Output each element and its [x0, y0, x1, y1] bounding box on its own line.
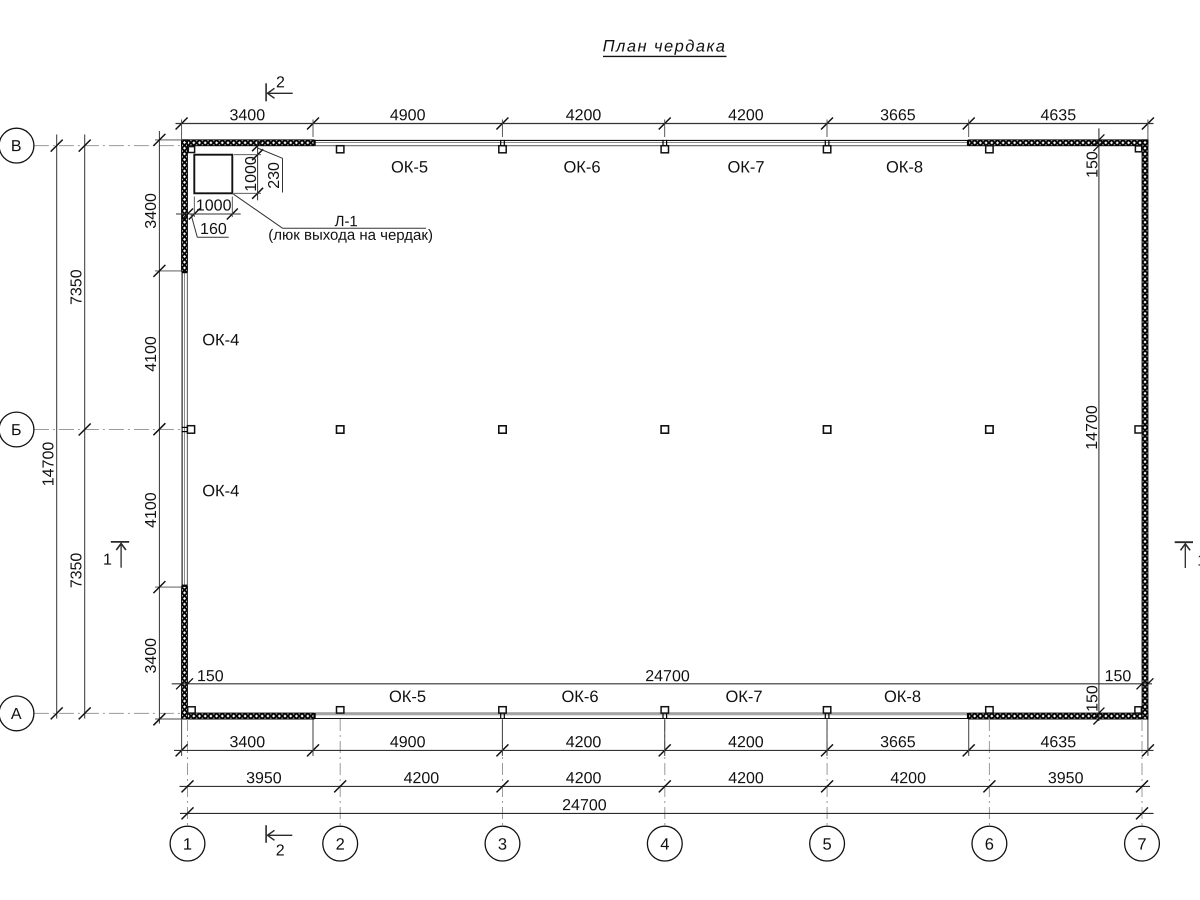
- svg-text:ОК-6: ОК-6: [561, 688, 598, 706]
- svg-text:150: 150: [1105, 668, 1132, 685]
- svg-text:План чердака: План чердака: [603, 37, 727, 55]
- svg-text:1: 1: [103, 552, 112, 569]
- svg-text:4900: 4900: [390, 734, 426, 751]
- svg-text:ОК-6: ОК-6: [563, 158, 600, 176]
- svg-text:Б: Б: [11, 422, 22, 439]
- svg-text:1: 1: [183, 836, 192, 854]
- svg-text:7350: 7350: [69, 553, 86, 589]
- svg-text:ОК-5: ОК-5: [391, 158, 428, 176]
- svg-text:4200: 4200: [728, 770, 764, 787]
- svg-text:6: 6: [985, 836, 994, 854]
- svg-text:14700: 14700: [1084, 405, 1101, 450]
- svg-text:1000: 1000: [196, 197, 232, 214]
- svg-text:3: 3: [498, 836, 507, 854]
- svg-text:4635: 4635: [1040, 734, 1076, 751]
- svg-text:4200: 4200: [404, 770, 440, 787]
- svg-text:ОК-5: ОК-5: [389, 688, 426, 706]
- svg-text:4100: 4100: [143, 492, 160, 528]
- svg-text:(люк выхода на чердак): (люк выхода на чердак): [268, 227, 433, 244]
- svg-text:3400: 3400: [143, 193, 160, 229]
- svg-text:2: 2: [336, 836, 345, 854]
- svg-text:4200: 4200: [890, 770, 926, 787]
- svg-text:14700: 14700: [41, 442, 58, 487]
- svg-text:В: В: [11, 138, 22, 155]
- svg-text:7350: 7350: [69, 269, 86, 305]
- svg-text:150: 150: [1085, 685, 1102, 712]
- svg-text:3665: 3665: [880, 107, 916, 124]
- svg-text:ОК-8: ОК-8: [886, 158, 923, 176]
- svg-text:24700: 24700: [562, 797, 607, 814]
- svg-text:4100: 4100: [143, 336, 160, 372]
- svg-text:4200: 4200: [566, 770, 602, 787]
- svg-text:2: 2: [276, 74, 285, 91]
- svg-text:3400: 3400: [229, 107, 265, 124]
- svg-text:5: 5: [823, 836, 832, 854]
- svg-text:4: 4: [660, 836, 669, 854]
- svg-text:ОК-4: ОК-4: [202, 482, 239, 500]
- svg-text:ОК-7: ОК-7: [725, 688, 762, 706]
- svg-text:160: 160: [200, 221, 227, 238]
- svg-text:150: 150: [1085, 151, 1102, 178]
- svg-text:2: 2: [276, 842, 285, 859]
- svg-text:4200: 4200: [728, 107, 764, 124]
- svg-text:ОК-8: ОК-8: [884, 688, 921, 706]
- svg-text:3950: 3950: [1048, 770, 1084, 787]
- svg-text:4200: 4200: [566, 734, 602, 751]
- svg-text:24700: 24700: [645, 668, 690, 685]
- svg-text:4200: 4200: [728, 734, 764, 751]
- svg-text:7: 7: [1137, 836, 1146, 854]
- svg-text:ОК-4: ОК-4: [202, 331, 239, 349]
- svg-text:4900: 4900: [390, 107, 426, 124]
- svg-text:А: А: [11, 706, 22, 723]
- svg-text:230: 230: [266, 162, 283, 189]
- svg-text:4635: 4635: [1040, 107, 1076, 124]
- svg-text:4200: 4200: [566, 107, 602, 124]
- svg-text:3400: 3400: [229, 734, 265, 751]
- svg-text:1000: 1000: [243, 156, 260, 192]
- svg-text:150: 150: [197, 668, 224, 685]
- svg-text:3665: 3665: [880, 734, 916, 751]
- svg-text:3400: 3400: [143, 638, 160, 674]
- svg-text:3950: 3950: [246, 770, 282, 787]
- svg-text:ОК-7: ОК-7: [727, 158, 764, 176]
